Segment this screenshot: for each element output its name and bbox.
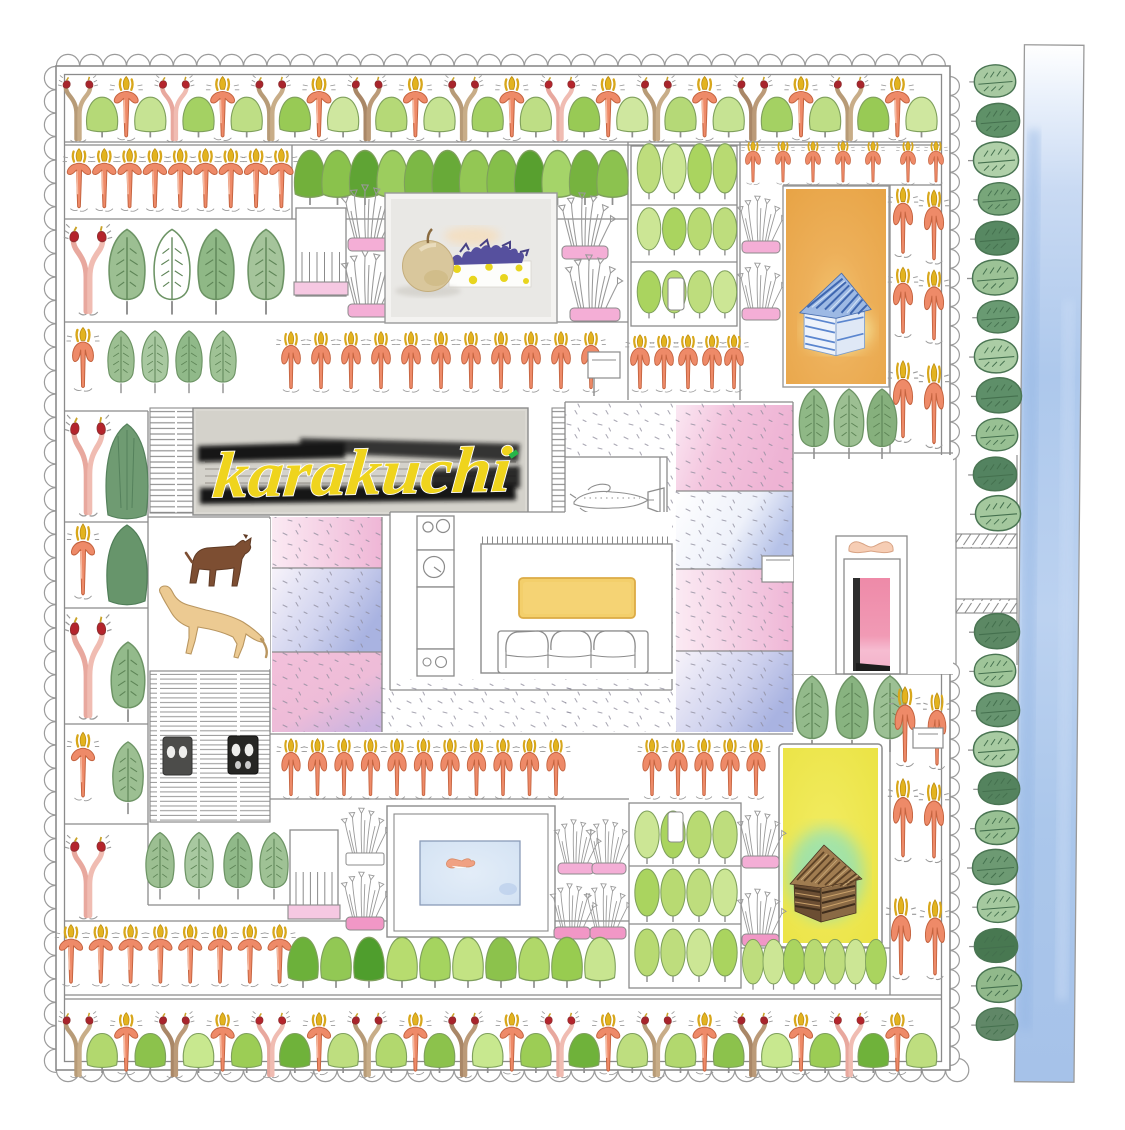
svg-text:karakuchi: karakuchi (210, 434, 514, 512)
